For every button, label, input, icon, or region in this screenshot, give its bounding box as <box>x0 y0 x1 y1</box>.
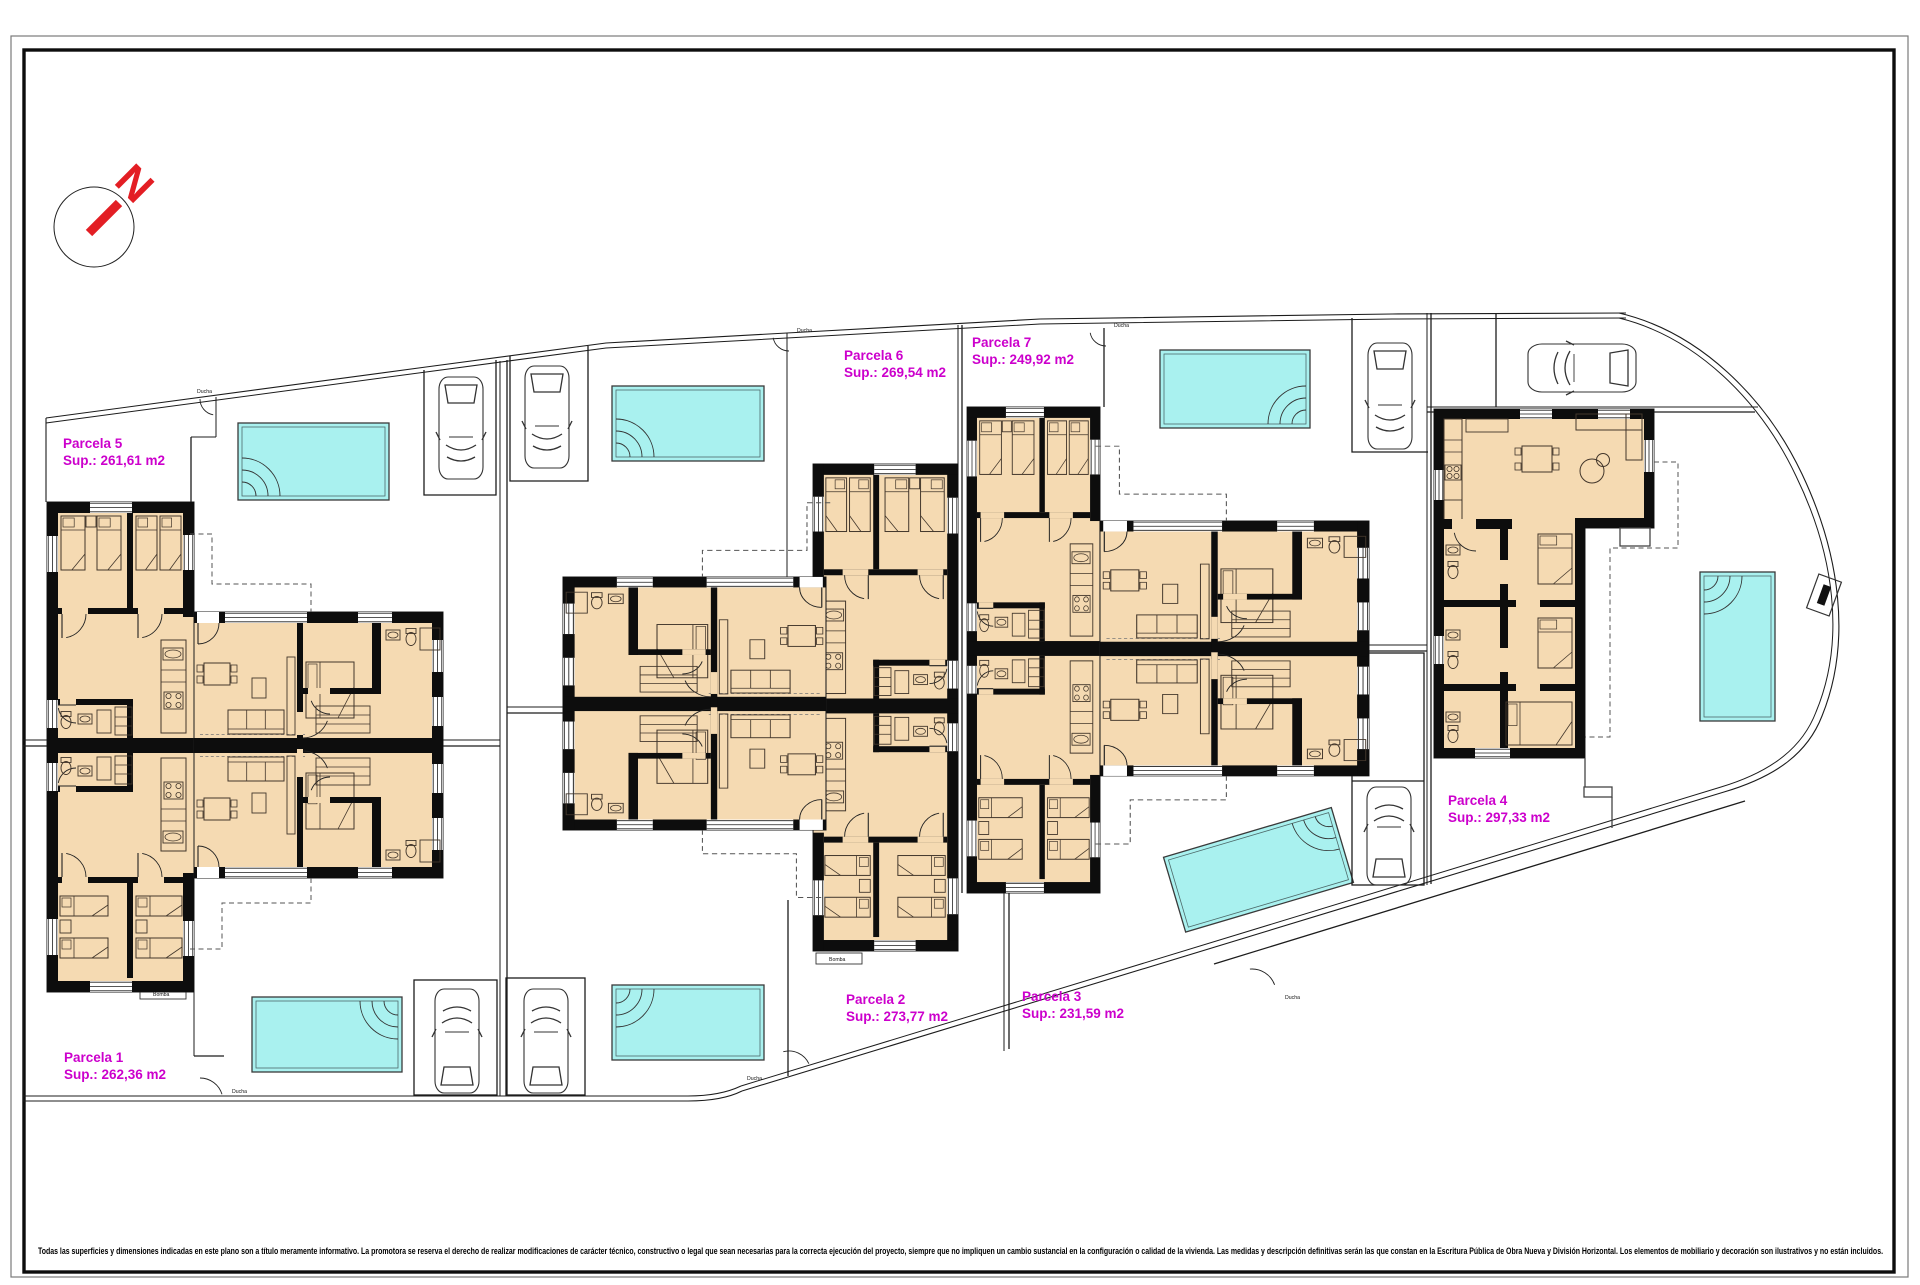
svg-text:Ducha: Ducha <box>747 1076 762 1082</box>
svg-text:Ducha: Ducha <box>797 328 812 334</box>
svg-text:Sup.: 297,33 m2: Sup.: 297,33 m2 <box>1448 810 1550 825</box>
svg-text:Parcela 2: Parcela 2 <box>846 992 905 1007</box>
svg-text:Parcela 6: Parcela 6 <box>844 348 904 363</box>
svg-text:Ducha: Ducha <box>1114 323 1129 329</box>
svg-text:Parcela 3: Parcela 3 <box>1022 989 1082 1004</box>
svg-text:Sup.: 231,59 m2: Sup.: 231,59 m2 <box>1022 1006 1124 1021</box>
svg-text:Sup.: 269,54 m2: Sup.: 269,54 m2 <box>844 365 946 380</box>
svg-text:Sup.: 273,77 m2: Sup.: 273,77 m2 <box>846 1009 948 1024</box>
svg-text:Parcela 1: Parcela 1 <box>64 1050 124 1065</box>
svg-text:Sup.: 249,92 m2: Sup.: 249,92 m2 <box>972 352 1074 367</box>
svg-text:Todas las superficies y dimens: Todas las superficies y dimensiones indi… <box>38 1246 1883 1256</box>
svg-text:Sup.: 261,61 m2: Sup.: 261,61 m2 <box>63 453 165 468</box>
svg-text:Bomba: Bomba <box>153 992 170 998</box>
svg-text:Ducha: Ducha <box>197 389 212 395</box>
svg-text:Ducha: Ducha <box>1285 995 1300 1001</box>
svg-text:Bomba: Bomba <box>829 957 846 963</box>
svg-text:Parcela 5: Parcela 5 <box>63 436 123 451</box>
svg-text:Parcela 4: Parcela 4 <box>1448 793 1508 808</box>
svg-text:Parcela 7: Parcela 7 <box>972 335 1031 350</box>
svg-text:Sup.: 262,36 m2: Sup.: 262,36 m2 <box>64 1067 166 1082</box>
svg-text:Ducha: Ducha <box>232 1089 247 1095</box>
